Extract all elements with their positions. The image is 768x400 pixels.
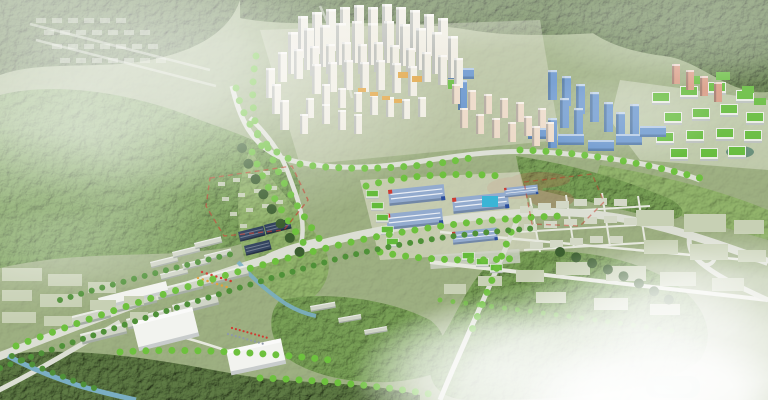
cloud xyxy=(508,73,728,163)
masterplan-render xyxy=(0,0,768,400)
fog-layer xyxy=(0,0,768,400)
aerial-city-rendering xyxy=(0,0,768,400)
